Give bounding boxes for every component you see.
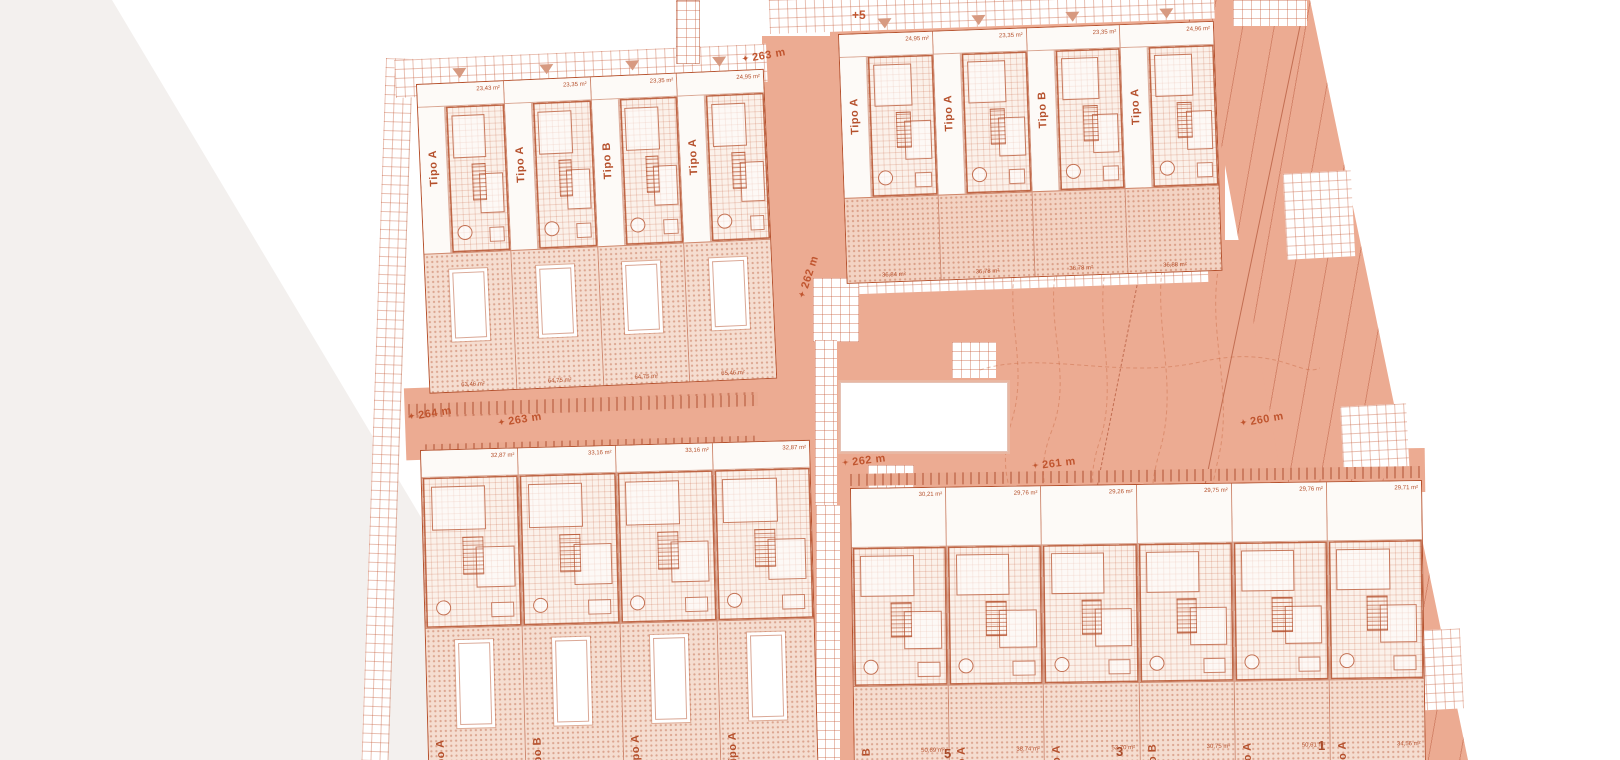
garden-area-label: 34,56 m² [1397,741,1421,747]
pool-deck-patch [813,278,859,342]
unit-type-label: Tipo A [726,732,739,760]
sofa-icon [663,219,678,235]
stairs-icon [896,112,912,148]
sofa-icon [918,662,941,677]
pool [452,272,487,339]
unit-floorplan [961,51,1032,193]
table-icon [959,658,974,673]
room-outline [956,554,1010,595]
unit-floor-area-label: 23,35 m² [650,78,674,85]
table-icon [1054,657,1069,672]
unit-floor-area-label: 24,95 m² [905,36,929,43]
benchmark-star-icon: ✦ [497,417,506,427]
unit-entry-terrace: 24,96 m² [1120,22,1213,48]
unit-entry-terrace: 32,87 m² [713,441,810,471]
block-top-left: 23,43 m² Tipo A 63,46 m² Tipo A 23,35 m² [416,69,777,394]
housing-unit: 23,35 m² Tipo B 64,75 m² Tipo B [589,74,689,385]
unit-garden: Tipo A [620,620,720,760]
unit-body: Tipo A [840,55,938,198]
unit-garden: 36,84 m² Tipo A [845,195,941,283]
unit-floorplan [616,470,716,622]
room-outline [1061,57,1100,99]
unit-body: Tipo A [1042,544,1138,683]
room-outline [967,61,1006,103]
unit-floor-area-label: 33,16 m² [685,447,709,454]
garden-area-label: 30,75 m² [1207,744,1231,750]
stairs-icon [891,602,912,637]
unit-garden: 50,61 m² Tipo A [1234,679,1330,760]
block-bottom-left: 32,87 m² Tipo A Tipo A 33,16 m² [420,440,819,760]
unit-garden: 63,46 m² Tipo A [424,250,516,393]
unit-body: Tipo A [713,468,813,620]
housing-unit: 23,35 m² Tipo B 36,78 m² Tipo B [1025,25,1127,276]
level-annotation: +5 [852,8,866,22]
room-outline [624,106,660,150]
unit-body: Tipo A [422,475,522,627]
unit-type-label: Tipo B [1146,744,1159,760]
room-outline [860,555,914,596]
stairs-icon [657,531,679,570]
sofa-icon [782,593,805,609]
unit-body: Tipo B [591,97,683,247]
stairs-icon [986,601,1007,636]
unit-garden: 64,75 m² Tipo A [511,246,603,389]
unit-floorplan [445,104,510,252]
plot-number: 1 [1318,738,1325,753]
pool [539,268,574,335]
unit-type-label: Tipo A [1129,88,1142,125]
garden-area-label: 38,74 m² [1016,746,1040,752]
housing-unit: 24,95 m² Tipo A 65,46 m² Tipo A [676,70,776,381]
pool [458,642,492,725]
unit-entry-terrace: 30,21 m² [851,488,946,548]
pool [653,637,687,720]
garden-area-label: 65,46 m² [721,370,745,377]
unit-body: Tipo A [947,545,1043,684]
unit-floor-area-label: 24,96 m² [1186,26,1210,33]
unit-type-label: Tipo A [514,146,528,183]
sofa-icon [750,215,765,231]
table-icon [457,225,473,241]
unit-type-label: Tipo A [848,98,861,135]
room-outline [1154,54,1193,96]
pool [555,640,589,723]
sofa-icon [491,601,514,617]
stairs-icon [1081,600,1102,635]
unit-entry-terrace: 29,75 m² [1137,484,1232,544]
unit-body: Tipo A [418,104,510,254]
entry-arrow-icon [1159,8,1173,18]
sofa-icon [1013,661,1036,676]
unit-floor-area-label: 29,76 m² [1014,490,1038,496]
stairs-icon [645,156,660,194]
plot-number: 5 [944,746,951,760]
unit-floor-area-label: 23,35 m² [563,82,587,89]
unit-floor-area-label: 30,21 m² [919,492,943,498]
unit-garden: 30,75 m² Tipo B [1139,681,1235,760]
unit-floorplan [713,468,813,620]
block-bottom-right: 30,21 m² Tipo B 50,69 m² Tipo B 29,76 m² [850,480,1426,760]
room-outline [711,102,747,146]
entry-arrow-icon [712,56,726,67]
benchmark-star-icon: ✦ [1239,418,1248,428]
table-icon [533,598,548,613]
unit-garden: 52,70 m² Tipo A [1044,682,1140,760]
unit-body: Tipo B [1027,48,1125,191]
sofa-icon [1196,162,1213,177]
terrain-contours [980,250,1320,520]
crosswalk [1233,0,1307,26]
table-icon [1149,656,1164,671]
garden-area-label: 36,84 m² [882,272,906,279]
room-outline [538,110,574,154]
garden-area-label: 50,69 m² [921,748,945,754]
garden-area-label: 36,88 m² [1163,262,1187,269]
unit-type-label: Tipo B [532,737,545,760]
stairs-icon [558,160,573,198]
entry-arrow-icon [972,15,986,25]
garden-area-label: 64,75 m² [548,378,572,385]
unit-type-label: Tipo A [942,94,955,131]
housing-unit: 29,76 m² Tipo A 50,61 m² Tipo A [1231,482,1330,760]
stairs-icon [560,534,582,573]
unit-floor-area-label: 33,16 m² [588,450,612,457]
housing-unit: 33,16 m² Tipo A Tipo A [614,443,720,760]
table-icon [1066,163,1082,179]
block-top-right: 24,95 m² Tipo A 36,84 m² Tipo A 23,35 m² [838,21,1222,284]
housing-unit: 23,35 m² Tipo A 64,75 m² Tipo A [503,77,603,388]
unit-floorplan [532,100,597,248]
unit-body: Tipo A [616,470,716,622]
unit-floor-area-label: 29,71 m² [1394,485,1418,491]
pool [712,260,747,327]
room-outline [1241,550,1295,591]
housing-unit: 24,96 m² Tipo A 36,88 m² Tipo A [1119,22,1221,273]
unit-entry-terrace: 29,71 m² [1327,481,1422,541]
unit-body: Tipo B [519,473,619,625]
sofa-icon [576,223,591,239]
unit-floor-area-label: 32,87 m² [491,453,515,460]
room-outline [722,478,778,523]
unit-type-label: Tipo A [427,150,441,187]
unit-type-label: Tipo A [1241,743,1254,760]
garden-area-label: 52,70 m² [1111,745,1135,751]
benchmark-star-icon: ✦ [1032,461,1040,471]
room-outline [451,114,487,158]
housing-unit: 32,87 m² Tipo A Tipo A [712,441,818,760]
stairs-icon [1176,598,1197,633]
table-icon [1244,654,1259,669]
unit-entry-terrace: 33,16 m² [518,446,615,476]
housing-unit: 29,71 m² Tipo A 34,56 m² Tipo A [1326,481,1425,760]
stairs-icon [1083,105,1099,141]
room-outline [528,483,584,528]
unit-entry-terrace: 24,95 m² [839,32,932,58]
sofa-icon [1108,659,1131,674]
wall-pillar [676,0,700,64]
unit-body: Tipo A [1121,45,1219,188]
unit-type-label: Tipo A [1336,741,1349,760]
unit-floor-area-label: 23,43 m² [476,85,500,92]
crosswalk [1283,170,1355,259]
unit-garden: 64,75 m² Tipo B [598,242,690,385]
entry-arrow-icon [626,60,640,71]
unit-body: Tipo A [1328,540,1424,679]
unit-garden: 65,46 m² Tipo A [684,239,776,382]
sofa-icon [685,596,708,612]
housing-unit: 24,95 m² Tipo A 36,84 m² Tipo A [839,32,940,283]
unit-floorplan [867,55,938,197]
unit-entry-terrace: 23,35 m² [1026,25,1119,51]
sofa-icon [588,599,611,615]
room-outline [625,480,681,525]
entry-arrow-icon [1065,12,1079,22]
room-outline [1051,553,1105,594]
unit-garden: Tipo B [523,623,623,760]
unit-body: Tipo A [678,93,770,243]
stairs-icon [1272,597,1293,632]
sofa-icon [1203,658,1226,673]
stairs-icon [1177,102,1193,138]
housing-unit: 29,76 m² Tipo A 38,74 m² Tipo A [945,486,1044,760]
unit-garden: 38,74 m² Tipo A [949,683,1045,760]
table-icon [972,167,988,183]
entry-arrow-icon [539,64,553,75]
entry-arrow-icon [452,68,466,79]
housing-unit: 32,87 m² Tipo A Tipo A [421,448,526,760]
unit-floorplan [1054,48,1125,190]
unit-entry-terrace: 29,26 m² [1041,485,1136,545]
room-outline [431,485,487,530]
room-outline [1336,549,1390,590]
communal-pool [838,380,1010,454]
stairs-icon [732,152,747,190]
pool [625,264,660,331]
pool-side-path [815,340,837,505]
table-icon [630,217,646,233]
unit-floor-area-label: 24,95 m² [736,74,760,81]
unit-garden: 50,69 m² Tipo B [854,685,950,760]
unit-floor-area-label: 29,75 m² [1204,488,1228,494]
unit-garden: Tipo A [426,625,526,760]
unit-floor-area-label: 23,35 m² [999,33,1023,40]
unit-floorplan [852,547,948,686]
garden-area-label: 64,75 m² [634,374,658,381]
unit-floorplan [618,97,683,245]
garden-area-label: 36,78 m² [1069,265,1093,272]
sofa-icon [490,226,505,242]
south-walkway [816,505,840,760]
unit-body: Tipo A [1232,541,1328,680]
unit-type-label: Tipo A [1051,745,1064,760]
stairs-icon [1367,596,1388,631]
table-icon [544,221,560,237]
unit-garden: 36,78 m² Tipo B [1032,188,1128,276]
table-icon [1340,653,1355,668]
unit-type-label: Tipo B [600,142,614,180]
unit-garden: 34,56 m² Tipo A [1330,678,1426,760]
unit-entry-terrace: 23,35 m² [933,28,1026,54]
unit-type-label: Tipo B [1036,91,1049,128]
sofa-icon [1393,655,1416,670]
unit-type-label: Tipo A [687,139,701,176]
benchmark-star-icon: ✦ [842,458,850,468]
unit-body: Tipo B [852,547,948,686]
unit-garden: 36,88 m² Tipo A [1126,185,1222,273]
sofa-icon [1009,169,1026,184]
unit-entry-terrace: 33,16 m² [615,443,712,473]
unit-garden: 36,78 m² Tipo A [938,191,1034,279]
unit-garden: Tipo A [717,618,817,760]
unit-floorplan [1232,541,1328,680]
sofa-icon [1103,165,1120,180]
unit-floorplan [947,545,1043,684]
room-outline [1146,551,1200,592]
unit-body: Tipo A [505,100,597,250]
table-icon [864,660,879,675]
table-icon [717,214,733,230]
pool [750,635,784,718]
stairs-icon [462,536,484,575]
benchmark-star-icon: ✦ [407,411,416,421]
unit-entry-terrace: 32,87 m² [421,448,518,478]
unit-floorplan [519,473,619,625]
unit-type-label: Tipo A [629,735,642,760]
unit-floor-area-label: 29,76 m² [1299,486,1323,492]
stairs-icon [989,108,1005,144]
unit-floor-area-label: 29,26 m² [1109,489,1133,495]
housing-unit: 29,75 m² Tipo B 30,75 m² Tipo B [1136,484,1235,760]
table-icon [727,593,742,608]
unit-type-label: Tipo A [435,740,448,760]
unit-floorplan [1137,543,1233,682]
unit-floorplan [1148,45,1219,187]
garden-area-label: 63,46 m² [461,381,485,388]
room-outline [873,64,912,106]
unit-floorplan [422,475,522,627]
housing-unit: 23,43 m² Tipo A 63,46 m² Tipo A [417,81,516,392]
unit-type-label: Tipo B [861,748,874,760]
unit-floor-area-label: 23,35 m² [1093,29,1117,36]
unit-entry-terrace: 29,76 m² [1232,482,1327,542]
unit-floorplan [1042,544,1138,683]
stairs-icon [472,163,487,201]
garden-area-label: 36,78 m² [976,269,1000,276]
table-icon [1159,160,1175,176]
sofa-icon [1298,657,1321,672]
benchmark-star-icon: ✦ [741,54,750,64]
table-icon [878,170,894,186]
unit-floorplan [705,93,770,241]
unit-body: Tipo A [934,51,1032,194]
table-icon [630,595,645,610]
table-icon [435,600,450,615]
housing-unit: 33,16 m² Tipo B Tipo B [517,446,623,760]
housing-unit: 30,21 m² Tipo B 50,69 m² Tipo B [851,488,949,760]
unit-body: Tipo B [1137,543,1233,682]
unit-type-label: Tipo A [956,747,969,760]
housing-unit: 29,26 m² Tipo A 52,70 m² Tipo A [1040,485,1139,760]
stairs-icon [754,529,776,568]
site-plan-canvas: 23,43 m² Tipo A 63,46 m² Tipo A 23,35 m² [0,0,1620,760]
entry-arrow-icon [878,18,892,28]
unit-entry-terrace: 29,76 m² [946,486,1041,546]
unit-floorplan [1328,540,1424,679]
plot-number: 3 [1116,744,1123,759]
housing-unit: 23,35 m² Tipo A 36,78 m² Tipo A [932,28,1034,279]
unit-floor-area-label: 32,87 m² [782,445,806,452]
sofa-icon [915,172,932,187]
